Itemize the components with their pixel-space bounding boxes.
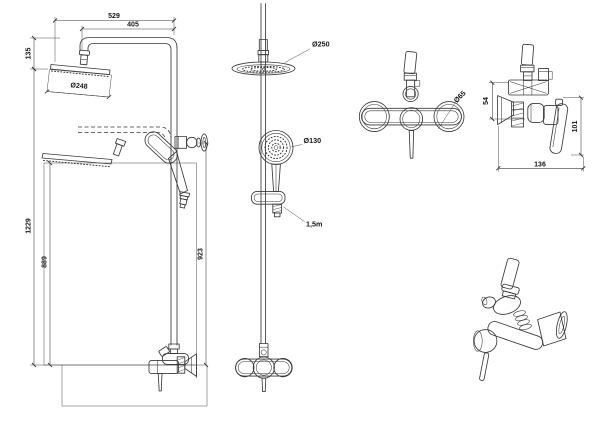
technical-drawing-page: 529 405 135 1229 889 923 Ø248 bbox=[0, 0, 600, 425]
dim-head-offset: 135 bbox=[26, 48, 33, 60]
mixer-handle-side bbox=[549, 103, 568, 154]
label-hand-shower-diameter: Ø130 bbox=[304, 136, 322, 145]
dim-outlet-offset: 54 bbox=[483, 97, 490, 105]
rain-head-front bbox=[232, 62, 295, 75]
shower-system-drawing: 529 405 135 1229 889 923 Ø248 bbox=[0, 0, 600, 425]
hand-shower-front bbox=[259, 131, 293, 192]
rail-holder-side bbox=[175, 134, 207, 151]
hand-shower-side bbox=[142, 129, 190, 209]
iso-wall-cone bbox=[538, 312, 566, 346]
dim-total-width: 529 bbox=[108, 13, 120, 20]
diverter-assembly bbox=[403, 51, 420, 101]
mixer-valve-side-bottom bbox=[149, 344, 197, 391]
iso-lever bbox=[479, 352, 489, 380]
mixer-side-view: 54 101 136 bbox=[483, 44, 584, 171]
mixer-lever bbox=[409, 131, 413, 159]
dim-rail-height: 923 bbox=[198, 248, 205, 260]
dim-depth: 136 bbox=[534, 162, 546, 169]
rail-holder-front bbox=[252, 191, 286, 204]
dim-arm-reach: 405 bbox=[127, 22, 139, 29]
lower-construction-box bbox=[62, 365, 207, 406]
mixer-isometric-view bbox=[473, 258, 569, 381]
rain-head-leader bbox=[285, 49, 310, 63]
dim-lower-height: 889 bbox=[42, 256, 49, 268]
hose-nut bbox=[273, 204, 282, 217]
mixer-valve-front-bottom bbox=[236, 344, 293, 392]
rain-head-side-lower bbox=[42, 127, 171, 167]
label-rain-head-diameter: Ø250 bbox=[312, 40, 330, 49]
shower-column-front-view: Ø250 Ø130 1,5m bbox=[232, 4, 330, 392]
dim-handle-height: 101 bbox=[572, 121, 579, 133]
wall-panel-outline bbox=[44, 163, 197, 365]
dim-total-height: 1229 bbox=[26, 218, 33, 234]
shower-column-side-view: 529 405 135 1229 889 923 Ø248 bbox=[26, 13, 210, 406]
label-hose-length: 1,5m bbox=[306, 220, 322, 229]
shower-arm-and-riser bbox=[80, 38, 177, 346]
mixer-front-view: Ø65 bbox=[359, 51, 467, 158]
head-connector bbox=[78, 50, 89, 65]
hose-spring bbox=[513, 310, 532, 331]
svg-text:Ø248: Ø248 bbox=[70, 82, 88, 90]
hose-leader bbox=[284, 207, 305, 222]
rail-top-connector bbox=[258, 40, 269, 63]
